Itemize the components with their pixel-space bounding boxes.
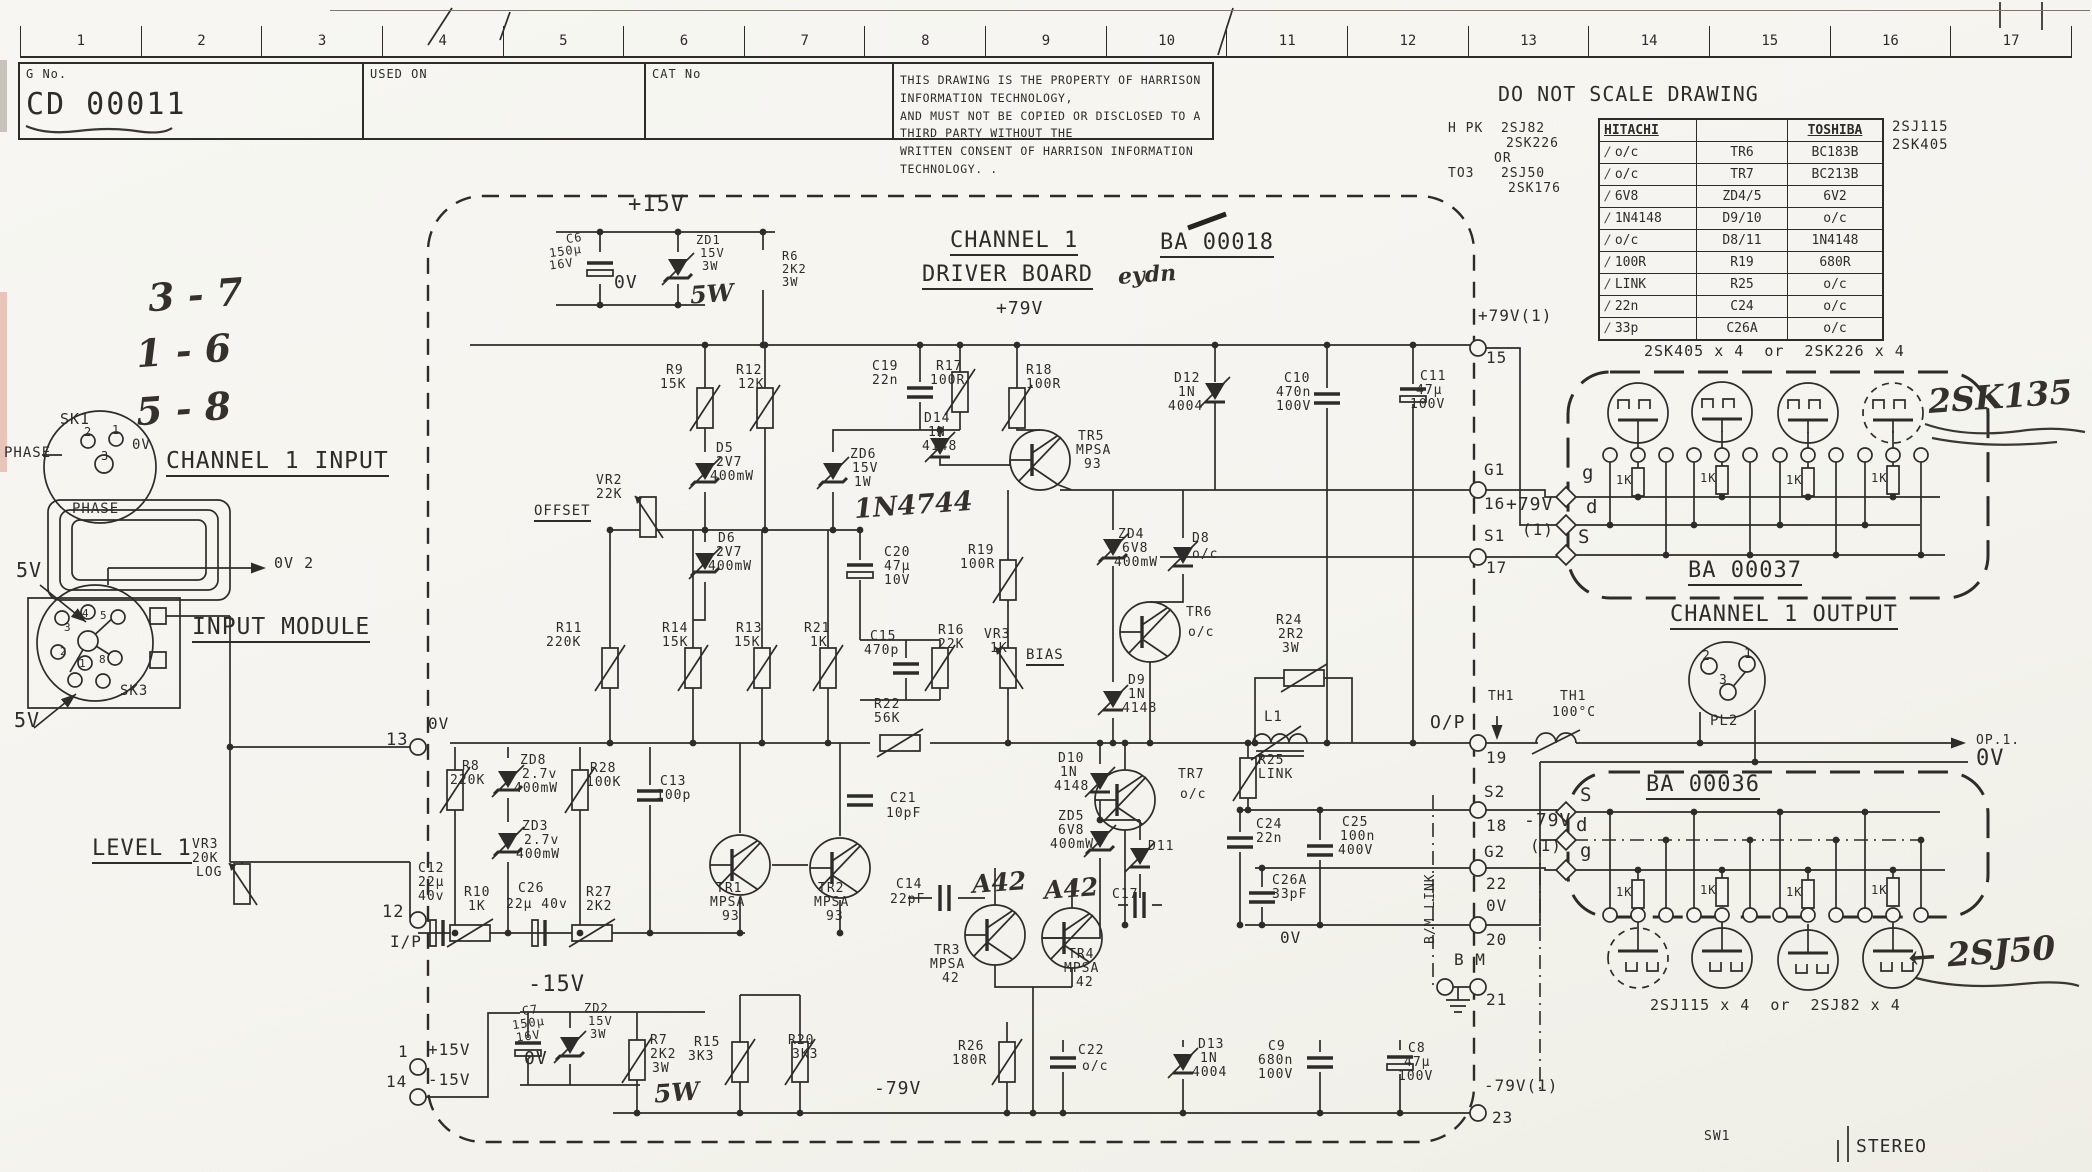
drawing-number: CD 00011	[26, 87, 356, 122]
zd3-zener	[492, 827, 524, 859]
pin-circle	[1701, 658, 1717, 674]
junction-dot	[762, 527, 769, 534]
junction-dot	[1691, 522, 1698, 529]
junction-dot	[737, 1110, 744, 1117]
drawing-number-cell: G No. CD 00011	[20, 64, 364, 138]
c24-capacitor	[1227, 838, 1253, 847]
ink-blot	[1188, 214, 1226, 228]
pin-circle	[410, 1059, 426, 1075]
module-pad	[150, 608, 166, 624]
r19-resistor	[993, 557, 1023, 603]
junction-dot	[797, 1110, 804, 1117]
junction-dot	[1777, 522, 1784, 529]
junction-dot	[690, 740, 697, 747]
used-on-label: USED ON	[370, 67, 638, 81]
r21-resistor	[813, 645, 843, 691]
fet-pin	[1743, 448, 1757, 462]
sk3-pin	[108, 651, 122, 665]
toshiba-cell: o/c	[1788, 296, 1882, 317]
ruler-number: 4	[383, 26, 504, 56]
table-row: ∕o/cTR6BC183B	[1600, 142, 1882, 164]
r24-resistor	[1281, 664, 1327, 692]
junction-dot	[647, 930, 654, 937]
ruler-number: 14	[1589, 26, 1710, 56]
r18-resistor	[1002, 385, 1032, 431]
toshiba-cell: o/c	[1788, 274, 1882, 295]
d8-diode	[1168, 541, 1198, 571]
zd6-zener	[817, 457, 849, 489]
fet-pin	[1687, 908, 1701, 922]
pin-circle	[1470, 340, 1486, 356]
r14-resistor	[678, 645, 708, 691]
junction-dot	[1030, 1110, 1037, 1117]
r26-resistor	[992, 1039, 1022, 1085]
ruler-number: 1	[20, 26, 142, 56]
sk1-pin	[81, 434, 95, 448]
junction-dot	[1122, 922, 1129, 929]
junction-dot	[1410, 740, 1417, 747]
ref-cell: TR7	[1697, 164, 1788, 185]
junction-dot	[1317, 807, 1324, 814]
hitachi-cell: ∕1N4148	[1600, 208, 1697, 229]
top-border-line	[330, 10, 2090, 11]
toshiba-cell: o/c	[1788, 318, 1882, 339]
ruler-number: 2	[142, 26, 263, 56]
d11-diode	[1125, 842, 1155, 872]
r27-resistor	[569, 919, 615, 947]
property-notice-cell: THIS DRAWING IS THE PROPERTY OF HARRISON…	[894, 64, 1212, 138]
junction-dot	[1805, 494, 1812, 501]
junction-dot	[597, 302, 604, 309]
toshiba-cell: BC213B	[1788, 164, 1882, 185]
junction-dot	[1691, 809, 1698, 816]
junction-dot	[1862, 809, 1869, 816]
junction-dot	[1004, 1110, 1011, 1117]
hitachi-cell: ∕o/c	[1600, 230, 1697, 251]
junction-dot	[1122, 740, 1129, 747]
notice-line: WRITTEN CONSENT OF HARRISON INFORMATION …	[900, 143, 1206, 179]
junction-dot	[1317, 1110, 1324, 1117]
r12-resistor	[750, 385, 780, 431]
junction-dot	[1607, 809, 1614, 816]
fet-pin	[1858, 448, 1872, 462]
title-block: G No. CD 00011 USED ON CAT No THIS DRAWI…	[18, 62, 1214, 140]
sk3-pin	[81, 605, 95, 619]
junction-dot	[1890, 867, 1897, 874]
junction-dot	[937, 427, 944, 434]
ruler-number: 11	[1227, 26, 1348, 56]
junction-dot	[760, 229, 767, 236]
cat-no-label: CAT No	[652, 67, 886, 81]
toshiba-cell: 6V2	[1788, 186, 1882, 207]
r25-link	[1233, 755, 1263, 801]
schematic-sheet: 1234567891011121314151617 G No. CD 00011…	[0, 0, 2092, 1172]
junction-dot	[1890, 494, 1897, 501]
pin-circle	[1739, 656, 1755, 672]
pin-circle	[1470, 979, 1486, 995]
ruler-number: 3	[262, 26, 383, 56]
r16-resistor	[925, 645, 955, 691]
c9-capacitor	[1307, 1058, 1333, 1067]
fet-pin	[1858, 908, 1872, 922]
junction-dot	[1397, 1110, 1404, 1117]
fet-pin	[1886, 448, 1900, 462]
vr3-bias-pot	[995, 647, 1023, 689]
table-row: ∕33pC26Ao/c	[1600, 318, 1882, 339]
junction-dot	[1663, 552, 1670, 559]
c19-capacitor	[907, 388, 933, 397]
substitution-table-header: HITACHI TOSHIBA	[1600, 120, 1882, 142]
fet-pin	[1801, 448, 1815, 462]
output-board-bottom-outline	[1568, 772, 1988, 917]
scan-edge-smudge	[0, 60, 7, 132]
zd4-zener	[1097, 533, 1129, 565]
junction-dot	[857, 527, 864, 534]
d5-zener	[689, 457, 721, 489]
pin-circle	[1720, 684, 1736, 700]
junction-dot	[1635, 494, 1642, 501]
table-row: ∕6V8ZD4/56V2	[1600, 186, 1882, 208]
gate-resistor	[1802, 468, 1814, 496]
tr6-transistor	[1120, 602, 1180, 662]
tr7-transistor	[1095, 770, 1155, 830]
hitachi-cell: ∕100R	[1600, 252, 1697, 273]
c13-capacitor	[637, 791, 663, 800]
junction-dot	[607, 740, 614, 747]
pin-circle	[1470, 482, 1486, 498]
junction-dot	[957, 342, 964, 349]
table-row: ∕100RR19680R	[1600, 252, 1882, 274]
gate-resistor	[1887, 878, 1899, 906]
c15-capacitor	[893, 664, 919, 673]
ref-cell: ZD4/5	[1697, 186, 1788, 207]
c25-capacitor	[1307, 846, 1333, 855]
gate-resistor	[1632, 880, 1644, 908]
input-cable-loop	[60, 510, 218, 590]
junction-dot	[1635, 867, 1642, 874]
r9-resistor	[690, 385, 720, 431]
hitachi-cell: ∕LINK	[1600, 274, 1697, 295]
fet-pin	[1659, 908, 1673, 922]
fet-pin	[1801, 908, 1815, 922]
ruler-number: 10	[1107, 26, 1228, 56]
toshiba-cell: BC183B	[1788, 142, 1882, 163]
ruler-number: 6	[624, 26, 745, 56]
pin-circle	[1437, 979, 1453, 995]
ruler-number: 12	[1348, 26, 1469, 56]
gate-resistor	[1887, 466, 1899, 494]
junction-dot	[1918, 837, 1925, 844]
sk3-pin	[68, 673, 82, 687]
tr5-transistor	[1010, 430, 1070, 490]
toshiba-cell: 680R	[1788, 252, 1882, 273]
junction-dot	[1607, 522, 1614, 529]
junction-dot	[1005, 740, 1012, 747]
hitachi-cell: ∕22n	[1600, 296, 1697, 317]
junction-dot	[1212, 342, 1219, 349]
c8-capacitor	[1387, 1057, 1413, 1070]
junction-dot	[917, 342, 924, 349]
fet-pin	[1914, 908, 1928, 922]
c26a-capacitor	[1249, 893, 1275, 902]
pin-circle	[1470, 802, 1486, 818]
fet-pin	[1773, 448, 1787, 462]
fet-pin	[1631, 908, 1645, 922]
c21-capacitor	[847, 796, 873, 805]
junction-dot	[1060, 1110, 1067, 1117]
junction-dot	[1324, 342, 1331, 349]
arrowhead	[1951, 738, 1966, 749]
sk3-pin	[78, 656, 92, 670]
junction-dot	[1747, 552, 1754, 559]
toshiba-cell: o/c	[1788, 208, 1882, 229]
junction-dot	[1862, 522, 1869, 529]
ruler-number: 17	[1951, 26, 2072, 56]
pin-circle	[1470, 917, 1486, 933]
c11-capacitor	[1400, 389, 1426, 402]
fet-pin	[1829, 908, 1843, 922]
pin-circle	[1470, 860, 1486, 876]
property-notice: THIS DRAWING IS THE PROPERTY OF HARRISON…	[900, 67, 1206, 179]
junction-dot	[1245, 807, 1252, 814]
connector-diamond	[1556, 860, 1576, 880]
zd5-zener	[1084, 825, 1116, 857]
junction-dot	[1237, 807, 1244, 814]
junction-dot	[1147, 740, 1154, 747]
r22-resistor	[877, 729, 923, 757]
sk1-pin	[95, 455, 113, 473]
ruler-number: 13	[1469, 26, 1590, 56]
junction-dot	[227, 744, 234, 751]
junction-dot	[1719, 494, 1726, 501]
r28-resistor	[565, 767, 595, 813]
c10-capacitor	[1314, 394, 1340, 403]
col-ref	[1697, 120, 1788, 141]
fet-pin	[1773, 908, 1787, 922]
c14-capacitor	[940, 885, 949, 911]
junction-dot	[597, 229, 604, 236]
junction-dot	[759, 740, 766, 747]
pin-circle	[410, 739, 426, 755]
junction-dot	[737, 930, 744, 937]
fet-pin	[1659, 448, 1673, 462]
junction-dot	[675, 302, 682, 309]
pin-circle	[1470, 1105, 1486, 1121]
fet-pin	[1914, 448, 1928, 462]
gate-resistor	[1716, 878, 1728, 906]
pin-circle	[410, 912, 426, 928]
cat-no-cell: CAT No	[646, 64, 894, 138]
sk3-pin	[55, 611, 69, 625]
junction-dot	[1410, 342, 1417, 349]
tr1-transistor	[710, 835, 770, 895]
ruler-number: 15	[1710, 26, 1831, 56]
ruler-scale: 1234567891011121314151617	[20, 26, 2072, 58]
arrowhead	[251, 563, 266, 574]
fet-pin	[1886, 908, 1900, 922]
junction-dot	[675, 229, 682, 236]
r11-resistor	[595, 645, 625, 691]
junction-dot	[837, 930, 844, 937]
ruler-number: 5	[504, 26, 625, 56]
junction-dot	[1918, 552, 1925, 559]
junction-dot	[825, 740, 832, 747]
input-cable-loop	[72, 520, 206, 580]
junction-dot	[702, 527, 709, 534]
junction-dot	[1245, 740, 1252, 747]
connector-diamond	[1556, 515, 1576, 535]
d9-diode	[1098, 685, 1128, 715]
arrowhead	[1492, 725, 1503, 740]
sk3-pin	[78, 631, 98, 651]
junction-dot	[1259, 865, 1266, 872]
pin-circle	[1470, 549, 1486, 565]
hitachi-cell: ∕33p	[1600, 318, 1697, 339]
c7-capacitor	[515, 1043, 541, 1056]
tr3-transistor	[965, 905, 1025, 965]
connector-diamond	[1556, 830, 1576, 850]
zd8-zener	[492, 765, 524, 797]
junction-dot	[1719, 867, 1726, 874]
connector-diamond	[1556, 802, 1576, 822]
ruler-number: 9	[986, 26, 1107, 56]
fet-pin	[1687, 448, 1701, 462]
junction-dot	[830, 527, 837, 534]
c6-capacitor	[587, 263, 613, 276]
table-row: ∕o/cTR7BC213B	[1600, 164, 1882, 186]
junction-dot	[1317, 922, 1324, 929]
connector-diamond	[1556, 545, 1576, 565]
sk3-pin	[51, 645, 65, 659]
fet-pin	[1603, 908, 1617, 922]
junction-dot	[607, 527, 614, 534]
junction-dot	[634, 1110, 641, 1117]
junction-dot	[452, 930, 459, 937]
sk1-pin	[109, 432, 123, 446]
r7-resistor	[622, 1037, 652, 1083]
gate-resistor	[1802, 880, 1814, 908]
junction-dot	[1747, 837, 1754, 844]
junction-dot	[505, 930, 512, 937]
ruler-number: 7	[745, 26, 866, 56]
junction-dot	[1752, 759, 1759, 766]
ref-cell: C26A	[1697, 318, 1788, 339]
junction-dot	[1777, 809, 1784, 816]
tr2-transistor	[810, 838, 870, 898]
gate-resistor	[1716, 466, 1728, 494]
pin-circle	[410, 1089, 426, 1105]
pl2-connector	[1689, 642, 1765, 718]
ref-cell: R25	[1697, 274, 1788, 295]
junction-dot	[1097, 740, 1104, 747]
used-on-cell: USED ON	[364, 64, 646, 138]
c20-capacitor	[847, 565, 873, 578]
table-row: ∕22nC24o/c	[1600, 296, 1882, 318]
junction-dot	[577, 930, 584, 937]
notice-line: THIS DRAWING IS THE PROPERTY OF HARRISON…	[900, 72, 1206, 108]
col-hitachi: HITACHI	[1604, 123, 1659, 138]
junction-dot	[1014, 342, 1021, 349]
junction-dot	[762, 342, 769, 349]
r15-resistor	[725, 1039, 755, 1085]
gate-resistor	[1632, 468, 1644, 496]
junction-dot	[1663, 837, 1670, 844]
r17-resistor	[945, 369, 975, 415]
junction-dot	[1259, 922, 1266, 929]
fet-pin	[1829, 448, 1843, 462]
substitution-table: HITACHI TOSHIBA ∕o/cTR6BC183B∕o/cTR7BC21…	[1598, 118, 1884, 341]
junction-dot	[1097, 817, 1104, 824]
ref-cell: R19	[1697, 252, 1788, 273]
sk3-pin	[111, 610, 125, 624]
junction-dot	[1110, 740, 1117, 747]
zd1-zener	[662, 253, 694, 285]
table-row: ∕1N4148D9/10o/c	[1600, 208, 1882, 230]
ruler-number: 16	[1831, 26, 1952, 56]
fet-pin	[1715, 908, 1729, 922]
scan-edge-mark	[0, 292, 7, 472]
ref-cell: D9/10	[1697, 208, 1788, 229]
pin-circle	[1470, 735, 1486, 751]
junction-dot	[1252, 740, 1259, 747]
junction-dot	[1237, 922, 1244, 929]
fet-pin	[1715, 448, 1729, 462]
zd2-zener	[554, 1031, 586, 1063]
sk3-pin	[96, 674, 110, 688]
connector-diamond	[1556, 487, 1576, 507]
r20-resistor	[785, 1039, 815, 1085]
table-row: ∕LINKR25o/c	[1600, 274, 1882, 296]
fet-pin	[1603, 448, 1617, 462]
link-wires	[1433, 795, 1920, 1095]
hitachi-cell: ∕o/c	[1600, 142, 1697, 163]
toshiba-cell: 1N4148	[1788, 230, 1882, 251]
ref-cell: D8/11	[1697, 230, 1788, 251]
d13-diode	[1168, 1048, 1198, 1078]
ref-cell: TR6	[1697, 142, 1788, 163]
notice-line: AND MUST NOT BE COPIED OR DISCLOSED TO A…	[900, 108, 1206, 144]
hitachi-cell: ∕o/c	[1600, 164, 1697, 185]
c22-capacitor	[1050, 1058, 1076, 1067]
table-row: ∕o/cD8/111N4148	[1600, 230, 1882, 252]
vr2-offset-pot	[635, 496, 663, 538]
g-no-label: G No.	[26, 67, 356, 81]
hitachi-cell: ∕6V8	[1600, 186, 1697, 207]
junction-dot	[702, 342, 709, 349]
junction-dot	[1833, 837, 1840, 844]
ruler-number: 8	[865, 26, 986, 56]
r8-resistor	[440, 767, 470, 813]
col-toshiba: TOSHIBA	[1808, 123, 1863, 138]
junction-dot	[1324, 740, 1331, 747]
th1-thermal-switch	[1532, 730, 1580, 754]
junction-dot	[1833, 552, 1840, 559]
ref-cell: C24	[1697, 296, 1788, 317]
fet-pin	[1631, 448, 1645, 462]
input-cable-loop	[48, 500, 230, 600]
junction-dot	[1805, 867, 1812, 874]
fet-pin	[1743, 908, 1757, 922]
junction-dot	[1697, 740, 1704, 747]
r13-resistor	[747, 645, 777, 691]
junction-dot	[1180, 1110, 1187, 1117]
vr3-level-pot	[229, 863, 257, 905]
driver-board-outline	[428, 196, 1474, 1142]
